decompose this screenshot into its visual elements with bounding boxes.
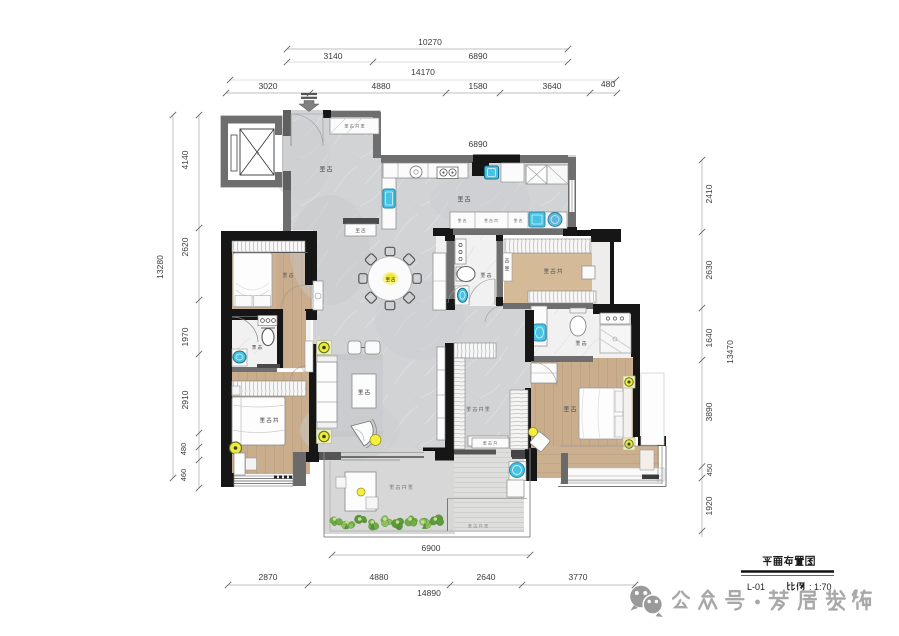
svg-text:450: 450 [705, 464, 714, 477]
svg-text:480: 480 [601, 79, 615, 89]
svg-text:2870: 2870 [259, 572, 278, 582]
svg-text:1920: 1920 [704, 496, 714, 515]
svg-text:3020: 3020 [259, 81, 278, 91]
svg-text:13470: 13470 [725, 340, 735, 364]
svg-text:14890: 14890 [417, 588, 441, 598]
svg-text:2410: 2410 [704, 184, 714, 203]
svg-text:2630: 2630 [704, 260, 714, 279]
svg-text:6890: 6890 [469, 139, 488, 149]
svg-text:3140: 3140 [324, 51, 343, 61]
svg-text:2620: 2620 [180, 237, 190, 256]
svg-text:3640: 3640 [543, 81, 562, 91]
svg-text:4880: 4880 [370, 572, 389, 582]
svg-text:2640: 2640 [477, 572, 496, 582]
svg-text:6890: 6890 [469, 51, 488, 61]
svg-text:10270: 10270 [418, 37, 442, 47]
svg-text:4140: 4140 [180, 150, 190, 169]
svg-text:1640: 1640 [704, 328, 714, 347]
svg-text:3890: 3890 [704, 402, 714, 421]
svg-text:1580: 1580 [469, 81, 488, 91]
svg-text:2910: 2910 [180, 390, 190, 409]
svg-text:4880: 4880 [372, 81, 391, 91]
svg-text:460: 460 [179, 469, 188, 482]
svg-text:480: 480 [179, 443, 188, 456]
svg-text:6900: 6900 [422, 543, 441, 553]
svg-text:13280: 13280 [155, 255, 165, 279]
svg-text:L-01: L-01 [747, 582, 765, 592]
svg-text:14170: 14170 [411, 67, 435, 77]
svg-text:1970: 1970 [180, 327, 190, 346]
svg-text:3770: 3770 [569, 572, 588, 582]
